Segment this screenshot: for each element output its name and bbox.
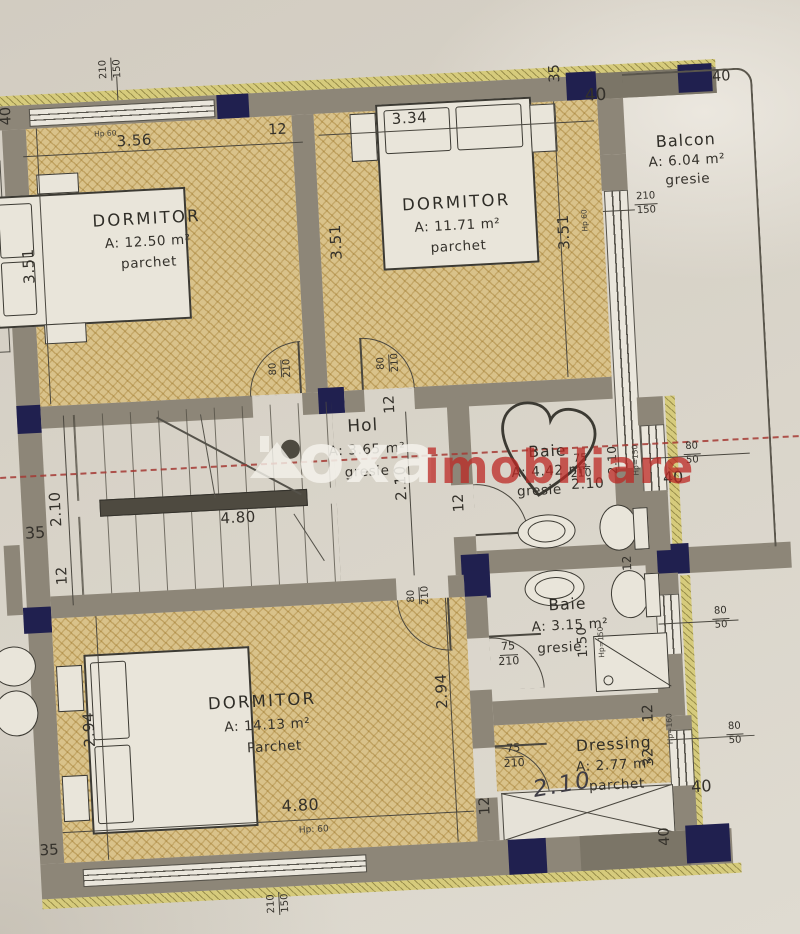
marker-12-dressing: 12 — [640, 704, 657, 723]
door-size-dressing: 75 210 — [503, 742, 525, 770]
marker-32-dressing: 32 — [640, 748, 657, 767]
watermark: oxa imobiliare — [246, 428, 766, 518]
marker-35-bottomleft: 35 — [39, 840, 59, 859]
marker-40-topleft: 40 — [0, 106, 15, 125]
column-top-1 — [216, 93, 249, 119]
marker-35-left: 35 — [24, 523, 45, 543]
dim-bedroom3-width: 4.80 — [281, 795, 320, 816]
hp-dressing-window: Hp=160 — [664, 713, 675, 744]
marker-40-dressing: 40 — [691, 776, 712, 796]
bed2-nightstand-left — [349, 113, 377, 162]
dim-bedroom1-width: 3.56 — [116, 131, 152, 151]
door-size-bedroom3: 80 210 — [405, 586, 431, 606]
bed3-nightstand-top — [56, 665, 84, 712]
wall-stairs-bottom-b — [448, 575, 465, 598]
dim-bedroom3-depth-left: 2.94 — [79, 711, 99, 747]
marker-12-hol: 12 — [381, 395, 398, 414]
bed3-nightstand-bottom — [62, 775, 90, 822]
room-name-baie2: Baie — [527, 593, 608, 615]
wall-balcony-upper — [597, 98, 626, 155]
marker-12-bottom: 12 — [477, 796, 494, 815]
dim-bedroom2-width: 3.34 — [391, 108, 427, 128]
wall-b3-right-a — [465, 596, 489, 639]
watermark-word: imobiliare — [424, 440, 694, 494]
wall-mid-c — [344, 390, 365, 413]
door-size-baie2: 75 210 — [497, 640, 519, 668]
marker-12-top: 12 — [268, 121, 287, 138]
marker-12-stairs: 12 — [54, 566, 71, 585]
dim-bedroom2-depth: 3.51 — [554, 214, 574, 250]
door-size-bedroom1: 80 210 — [267, 358, 293, 378]
wall-b3-right-b — [470, 690, 495, 749]
door-size-bedroom2: 80 210 — [375, 353, 401, 373]
column-bottom-2 — [685, 823, 731, 863]
wall-neighbor-stub — [4, 545, 24, 616]
hp-bottom-window: Hp: 60 — [299, 824, 329, 836]
dim-divider-depth: 3.51 — [326, 224, 346, 260]
marker-12-baie-divider: 12 — [620, 555, 635, 571]
window-size-bottom: 210 150 — [265, 891, 291, 915]
window-size-dressing-small: 80 50 — [726, 720, 744, 746]
house-icon — [250, 442, 304, 478]
hp-balcony-window: Hp 60 — [579, 209, 589, 232]
bed1-nightstand-bottom — [44, 322, 87, 344]
marker-40-topright: 40 — [712, 68, 731, 85]
floor-plan-photo: 80 210 80 210 75 210 — [0, 0, 800, 934]
toilet-baie2-tank — [644, 573, 661, 618]
marker-40-balcony: 40 — [584, 85, 607, 106]
bed1-nightstand-top — [36, 172, 79, 194]
window-size-balcony: 210 150 — [634, 190, 658, 216]
wall-balcony-mid — [600, 154, 628, 191]
column-left-1 — [16, 405, 41, 434]
column-stairs-bottom — [464, 569, 491, 598]
watermark-brand: oxa — [298, 420, 437, 499]
column-bottom-1 — [508, 838, 548, 875]
wall-baie1-right-a — [637, 396, 664, 425]
marker-40-bottomright: 40 — [656, 827, 673, 846]
window-size-baie2-small: 80 50 — [712, 605, 730, 631]
wall-bottom-dark-segment — [580, 830, 692, 871]
dim-baie2-length: 1.50 — [575, 626, 592, 658]
marker-35-top: 35 — [546, 64, 563, 83]
dim-stairs-width: 2.10 — [46, 491, 66, 527]
hp-baie2: Hp=150 — [596, 627, 607, 658]
column-left-2 — [23, 606, 52, 633]
bed3-pillow-2 — [94, 745, 134, 825]
hp-top-window: Hp 60 — [94, 128, 117, 138]
window-size-top: 210 150 — [97, 57, 123, 81]
dim-bedroom1-depth: 3.51 — [19, 248, 39, 284]
house-icon-chimney — [260, 436, 269, 452]
